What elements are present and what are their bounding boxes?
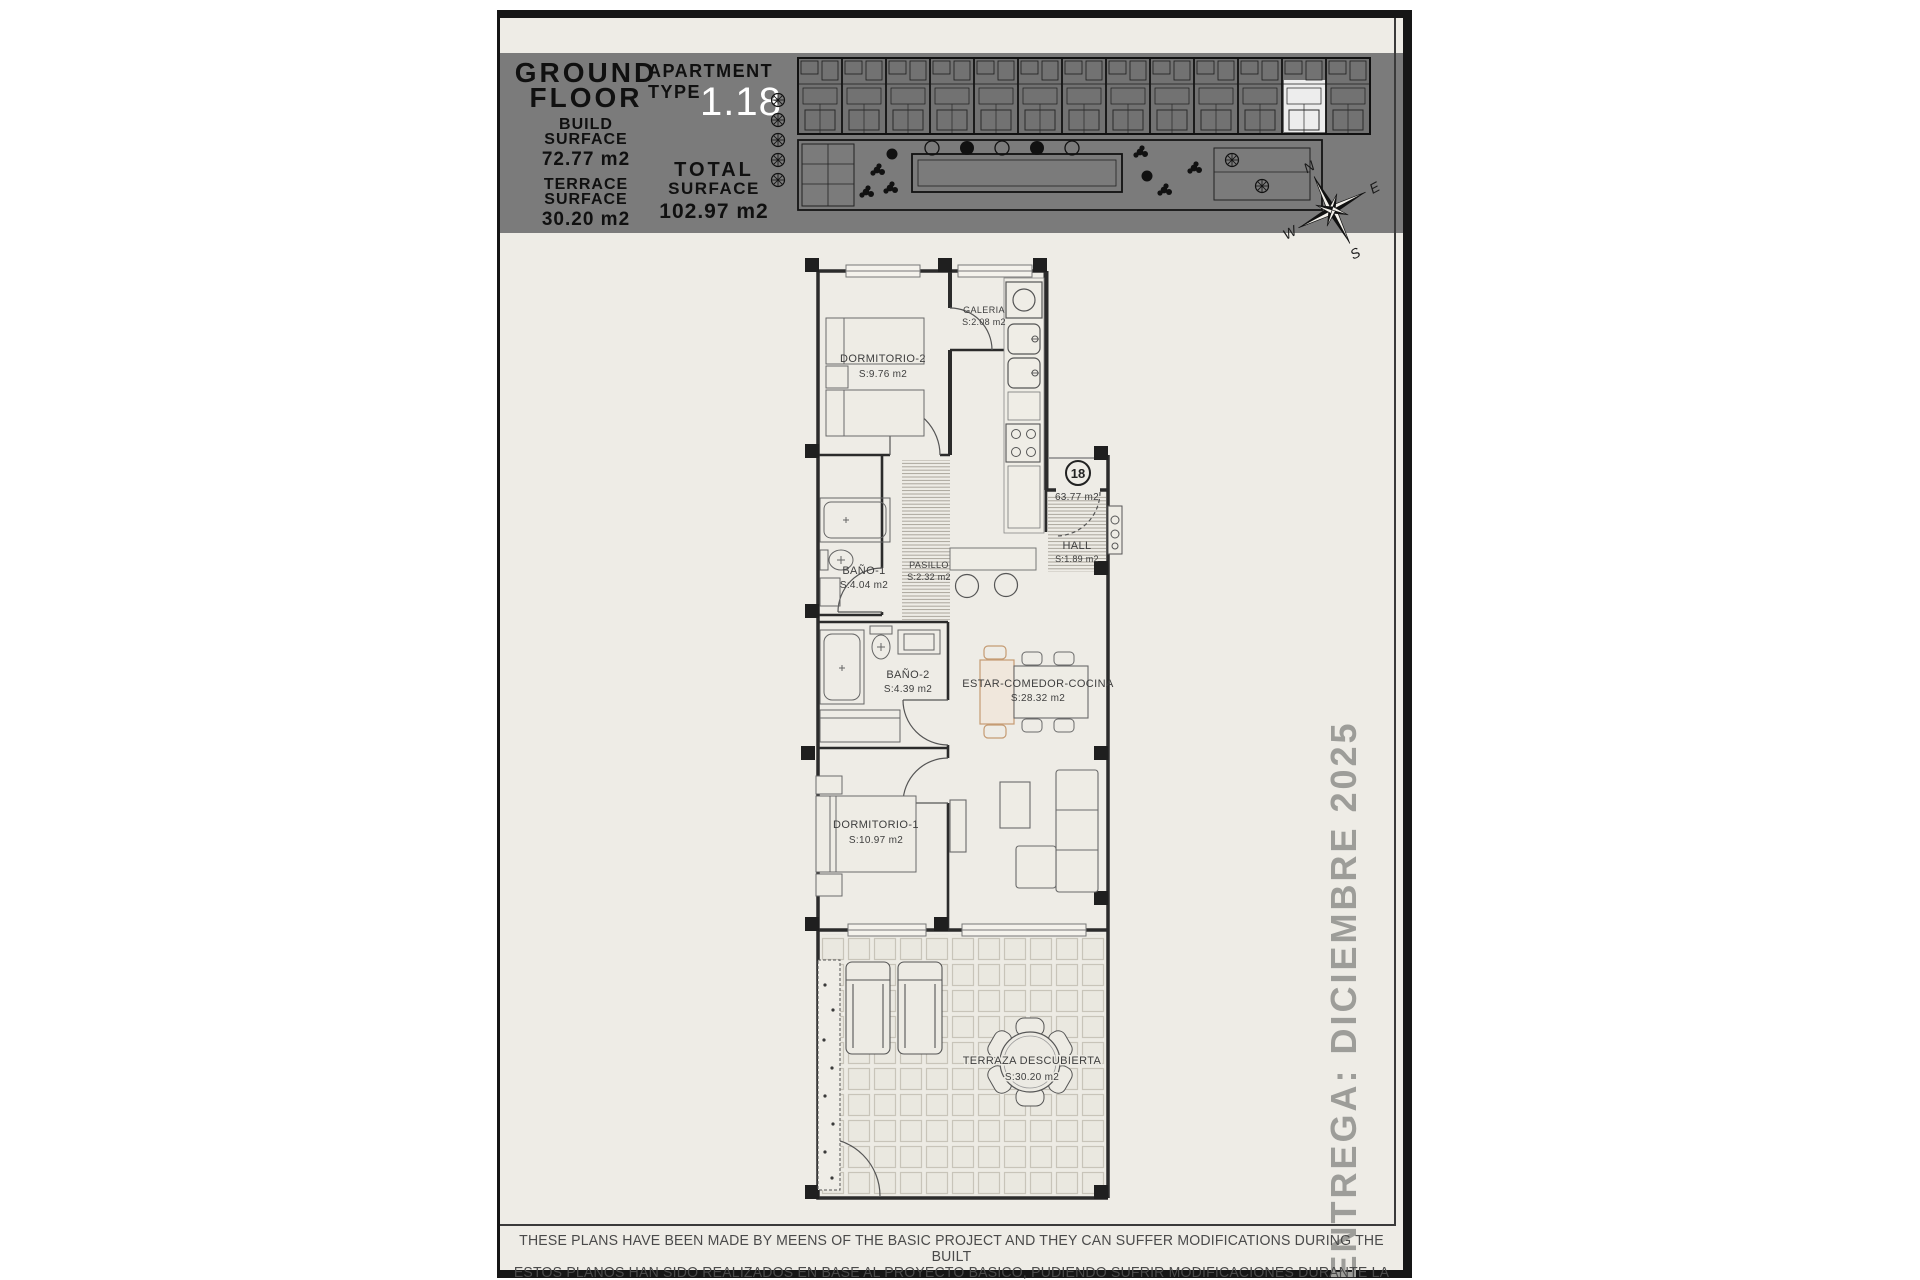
unit-number-label: 18 [1071, 466, 1085, 481]
disclaimer-line2: ESTOS PLANOS HAN SIDO REALIZADOS EN BASE… [514, 1265, 1390, 1280]
compass: N E S W [1278, 160, 1390, 264]
dining-set [980, 646, 1088, 738]
stool-icon [956, 575, 979, 598]
planter [818, 960, 840, 1190]
apartment-label: APARTMENT [648, 61, 778, 82]
build-label-1: BUILD [498, 117, 674, 132]
room-area: S:9.76 m2 [859, 369, 907, 380]
room-label: HALL [1062, 540, 1091, 552]
living-furniture [950, 770, 1098, 892]
sun-lounger-icon [846, 962, 890, 1054]
entrance-area-label: 63.77 m2 [1055, 492, 1099, 503]
disclaimer: THESE PLANS HAVE BEEN MADE BY MEENS OF T… [514, 1233, 1390, 1280]
room-label: DORMITORIO-1 [833, 819, 919, 831]
compass-north-label: N [1301, 160, 1318, 176]
compass-rose [1281, 160, 1384, 261]
site-garden [798, 140, 1322, 210]
room-label: BAÑO-2 [886, 668, 929, 681]
room-area: S:4.39 m2 [884, 684, 932, 695]
compass-south-label: S [1347, 244, 1363, 263]
page: GROUND FLOOR BUILD SURFACE 72.77 m2 TERR… [0, 0, 1920, 1280]
pasillo-floor [902, 460, 950, 620]
room-label: GALERIA [963, 305, 1005, 315]
build-label-2: SURFACE [498, 132, 674, 147]
hall-niche [1108, 506, 1122, 554]
floor-plan: 18 63.77 m2 DORMITORIO-2 S:9.76 m2 GALER… [780, 240, 1130, 1220]
room-label: TERRAZA DESCUBIERTA [963, 1055, 1102, 1067]
room-label: BAÑO-1 [842, 564, 885, 577]
room-area: S:1.89 m2 [1055, 554, 1099, 564]
room-area: S:10.97 m2 [849, 835, 903, 846]
compass-east-label: E [1367, 178, 1383, 197]
delivery-note-text: ENTREGA: DICIEMBRE 2025 [1323, 720, 1365, 1279]
room-area: S:4.04 m2 [840, 580, 888, 591]
site-units [798, 58, 1370, 134]
compass-west-label: W [1280, 222, 1301, 243]
disclaimer-line1: THESE PLANS HAVE BEEN MADE BY MEENS OF T… [514, 1233, 1390, 1265]
entrance-marker: 18 63.77 m2 [1055, 461, 1099, 503]
room-label: ESTAR-COMEDOR-COCINA [962, 678, 1114, 690]
room-area: S:30.20 m2 [1005, 1072, 1059, 1083]
sun-lounger-icon [898, 962, 942, 1054]
room-area: S:28.32 m2 [1011, 693, 1065, 704]
room-area: S:2.08 m2 [962, 317, 1006, 327]
room-label: DORMITORIO-2 [840, 353, 926, 365]
site-trees-left [772, 94, 785, 187]
room-area: S:2.32 m2 [907, 572, 951, 582]
room-label: PASILLO [909, 560, 949, 570]
delivery-note: ENTREGA: DICIEMBRE 2025 [1318, 770, 1370, 1230]
stool-icon [995, 574, 1018, 597]
